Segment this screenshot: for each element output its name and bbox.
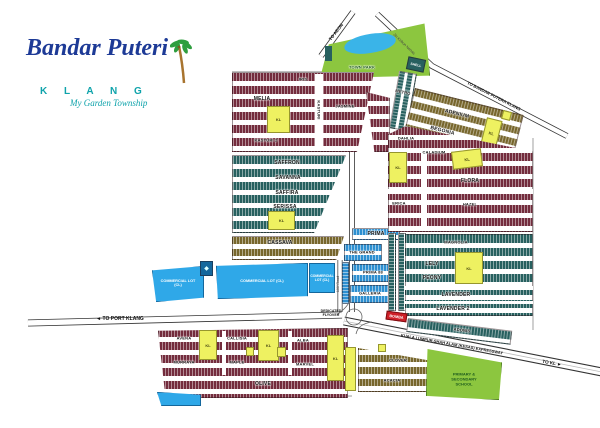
precinct-label-hazel: HAZEL — [463, 202, 477, 207]
logo-tagline: My Garden Township — [70, 98, 231, 108]
precinct-label-magnolia: MAGNOLIA — [444, 240, 467, 245]
commercial-lot-3-label: COMMERCIAL LOT (CL) — [310, 274, 334, 282]
precinct-label-maple: MAPLE — [230, 360, 245, 365]
precinct-label-melia: MELIA — [254, 96, 271, 102]
precinct-label-avena: AVENA — [177, 336, 192, 341]
precinct-label-kasturi: KASTURI — [317, 100, 322, 119]
precinct-label-lavender2: LAVENDER 2 — [436, 306, 469, 312]
yellow-lot: KL — [327, 335, 344, 381]
precinct-label-erica: ERICA — [392, 201, 405, 206]
road-100-label: 100' Road — [336, 276, 340, 292]
precinct-label-marvel: MARVEL — [296, 362, 314, 367]
precinct-label-dahlia: DAHLIA — [398, 136, 414, 141]
yellow-lot: KL — [451, 148, 483, 170]
precinct-label-kasturi2: KASTURI 2 — [255, 138, 278, 143]
precinct-label-olive: OLIVE — [255, 381, 271, 387]
precinct-label-callisia: CALLISIA — [227, 336, 247, 341]
precinct-label-flora: FLORA — [461, 178, 479, 184]
commercial-lot-1-label: COMMERCIAL LOT (CL) — [158, 279, 198, 287]
precinct-label-cassava: CASSAVA — [267, 240, 292, 246]
yellow-lot — [246, 347, 254, 356]
precinct-label-peony: PEONY — [423, 275, 442, 281]
yellow-lot: KL — [199, 330, 217, 360]
commercial-lot-2-label: COMMERCIAL LOT (CL) — [240, 279, 284, 283]
precinct-label-murraya: MURRAYA — [173, 360, 194, 365]
school-label: PRIMARY & SECONDARY SCHOOL — [444, 372, 484, 387]
logo: Bandar Puteri K L A N G My Garden Townsh… — [26, 36, 231, 106]
to-port-klang-road-label: ◄ TO PORT KLANG — [96, 316, 144, 322]
shop-strip — [342, 262, 349, 304]
yellow-lot: KL — [455, 252, 483, 284]
yellow-lot — [501, 110, 512, 121]
petrol-station-icon: ◆ — [200, 261, 213, 276]
precinct-label-acacia: ACACIA — [384, 378, 401, 383]
precinct-label-galleria: GALLERIA — [359, 291, 381, 296]
yellow-lot: KL — [389, 152, 407, 183]
precinct-label-saffira: SAFFIRA — [275, 190, 298, 196]
precinct-kasturi-block — [232, 72, 374, 152]
yellow-lot: KL — [258, 330, 279, 361]
precinct-label-adenium: ADENIUM — [444, 108, 469, 120]
precinct-label-the-grand: THE GRAND — [349, 250, 375, 255]
yellow-lot: KL — [268, 211, 295, 230]
precinct-label-lely: LELY — [425, 261, 438, 267]
precinct-label-iris: IRIS — [299, 77, 308, 82]
precinct-label-caladium: CALADIUM — [423, 150, 446, 155]
logo-subtitle: K L A N G — [40, 86, 231, 97]
dedicated-flyover-label: DEDICATED FLYOVER — [319, 309, 343, 317]
precinct-label-prima88: PRIMA 88 — [363, 270, 383, 275]
yellow-lot: KL — [267, 106, 290, 133]
yellow-shop-strip — [345, 347, 356, 391]
logo-title: Bandar Puteri — [26, 36, 168, 60]
precinct-label-jasmine: JASMINE — [335, 104, 354, 109]
site-plan-map: Bandar Puteri K L A N G My Garden Townsh… — [0, 0, 600, 428]
precinct-label-savanna: SAVANNA — [275, 175, 300, 181]
precinct-label-alba: ALBA — [297, 338, 309, 343]
precinct-label-serissa: SERISSA — [273, 204, 296, 210]
rowhouse-strip — [388, 233, 396, 311]
palm-tree-icon — [170, 36, 196, 84]
precinct-label-clover: CLOVER — [389, 358, 407, 363]
town-park-label: TOWN PARK — [349, 65, 375, 70]
precinct-label-saffron: SAFFRON — [274, 160, 300, 166]
yellow-lot — [378, 344, 386, 352]
precinct-label-prima: PRIMA — [367, 231, 384, 237]
precinct-label-lavender: LAVENDER — [442, 292, 471, 298]
yellow-lot — [277, 347, 286, 357]
park-facility-block — [325, 46, 332, 61]
